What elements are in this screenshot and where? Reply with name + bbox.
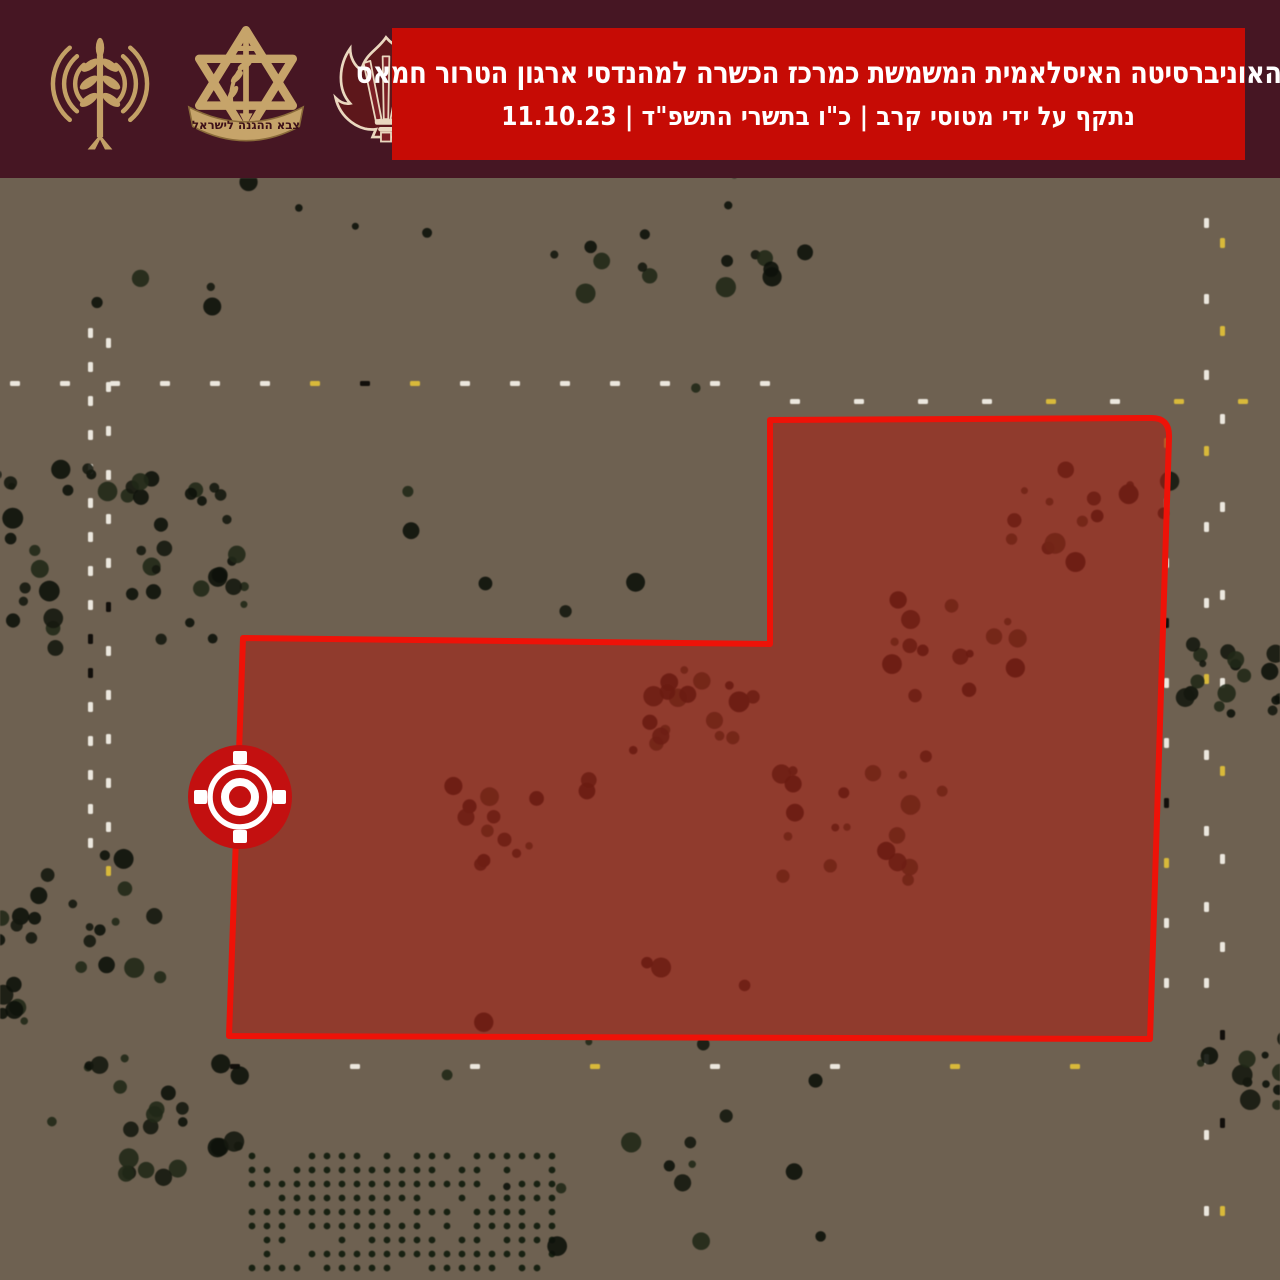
- satellite-map: [0, 178, 1280, 1280]
- banner-subtitle: נתקף על ידי מטוסי קרב | כ"ו בתשרי התשפ"ד…: [502, 102, 1136, 132]
- idf-spokesperson-antenna-emblem-icon: [38, 28, 162, 152]
- idf-ribbon-text: צבא ההגנה לישראל: [192, 118, 300, 132]
- strike-overlay: [0, 178, 1280, 1280]
- target-crosshair-icon: [188, 745, 292, 849]
- idf-emblem-icon: צבא ההגנה לישראל: [176, 25, 316, 155]
- target-area-polygon: [229, 418, 1169, 1039]
- header-banner: צבא ההגנה לישראל האוניברסיטה האיסלאמית ה…: [0, 0, 1280, 178]
- title-banner: האוניברסיטה האיסלאמית המשמשת כמרכז הכשרה…: [392, 28, 1245, 160]
- banner-title: האוניברסיטה האיסלאמית המשמשת כמרכז הכשרה…: [355, 56, 1280, 91]
